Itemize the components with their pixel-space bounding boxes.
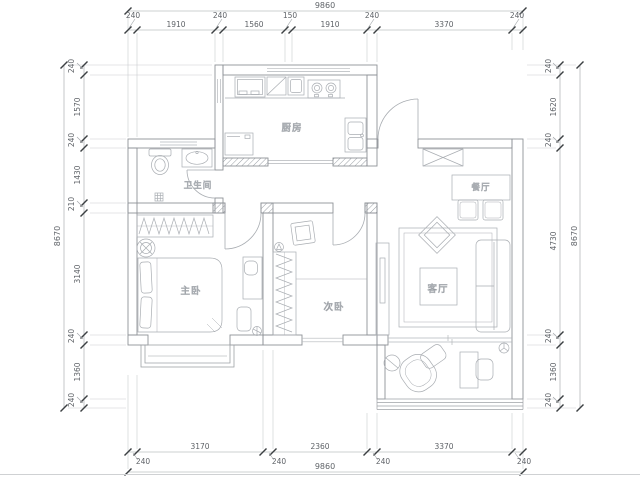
dim-label: 1620	[549, 97, 558, 116]
tv-icon	[376, 243, 389, 335]
fan-icon	[275, 243, 284, 252]
room-label-second-bedroom: 次卧	[323, 301, 344, 313]
washer-icon	[225, 133, 253, 155]
dim-label: 240	[544, 393, 553, 408]
desk-icon	[460, 352, 493, 388]
chair-icon	[483, 200, 503, 220]
dim-label: 150	[283, 11, 298, 20]
side-table-icon	[419, 217, 456, 254]
sink-icon	[345, 118, 366, 152]
dim-label: 240	[136, 457, 151, 466]
dim-chain-top: 9860 240 1910 240 1560 150 1910 240 3370…	[126, 1, 525, 29]
plant-icon	[253, 327, 262, 336]
floor-plan-page: 9860 240 1910 240 1560 150 1910 240 3370…	[0, 0, 640, 477]
dim-label: 240	[544, 59, 553, 74]
dim-label: 240	[376, 457, 391, 466]
dim-label: 8670	[570, 226, 579, 246]
walls	[128, 65, 523, 399]
floor-plan-svg: 9860 240 1910 240 1560 150 1910 240 3370…	[0, 0, 640, 477]
dim-label: 1910	[320, 20, 339, 29]
dim-label: 240	[517, 457, 532, 466]
room-balcony	[384, 343, 509, 398]
dim-label: 240	[126, 11, 141, 20]
dim-label: 1910	[166, 20, 185, 29]
dim-chain-right: 8670 240 1620 240 4730 240 1360 240	[544, 59, 579, 408]
dim-label: 2360	[310, 442, 329, 451]
floor-drain-icon	[499, 343, 509, 353]
lounge-chair-icon	[394, 349, 442, 397]
door-swing-icon	[225, 213, 261, 249]
dim-label: 240	[544, 133, 553, 148]
room-kitchen: 厨房	[225, 77, 366, 155]
extension-lines	[68, 14, 576, 469]
dim-label: 240	[544, 329, 553, 344]
floor-drain-icon	[155, 193, 163, 201]
desk-icon	[243, 257, 262, 299]
dim-label: 240	[67, 393, 76, 408]
dim-label: 9860	[315, 462, 335, 471]
dim-label: 9860	[315, 1, 335, 10]
dim-label: 1430	[73, 165, 82, 184]
door-swing-icon	[333, 213, 365, 245]
dim-label: 3140	[73, 264, 82, 283]
cabinet-icon	[267, 77, 304, 95]
room-master-bedroom: 主卧	[137, 215, 262, 336]
room-label-bathroom: 卫生间	[184, 180, 213, 191]
dim-label: 1570	[73, 97, 82, 116]
basin-icon	[182, 149, 212, 167]
desk-icon	[291, 221, 316, 246]
bench-icon	[237, 307, 251, 331]
bay-window-icon	[141, 345, 234, 367]
doors	[187, 99, 418, 249]
room-label-kitchen: 厨房	[281, 122, 302, 134]
room-living: 客厅	[376, 217, 510, 335]
dim-chain-left: 8670 240 1570 240 1430 210 3140 240 1360…	[53, 59, 82, 408]
room-label-master-bedroom: 主卧	[180, 285, 201, 297]
chair-icon	[458, 200, 478, 220]
room-bathroom: 卫生间	[149, 149, 212, 201]
dim-label: 240	[272, 457, 287, 466]
dim-label: 240	[213, 11, 228, 20]
sofa-icon	[476, 240, 510, 332]
wardrobe-icon	[137, 215, 213, 237]
dim-label: 1560	[244, 20, 263, 29]
dim-label: 240	[365, 11, 380, 20]
shoe-cabinet-icon	[423, 149, 463, 166]
dim-label: 3370	[434, 20, 453, 29]
room-label-dining: 餐厅	[471, 183, 490, 193]
side-table-icon	[384, 355, 400, 371]
dim-label: 1360	[73, 362, 82, 381]
dim-label: 210	[67, 197, 76, 212]
room-dining: 餐厅	[423, 149, 510, 220]
dim-label: 3170	[190, 442, 209, 451]
dim-label: 4730	[549, 231, 558, 250]
dimension-ticks	[61, 8, 584, 476]
balcony-rail	[377, 399, 523, 410]
fan-icon	[137, 239, 155, 257]
wardrobe-icon	[273, 252, 296, 335]
dim-label: 8670	[53, 226, 62, 246]
toilet-icon	[149, 149, 171, 175]
fridge-icon	[235, 77, 265, 97]
room-label-living: 客厅	[427, 283, 448, 295]
stove-icon	[308, 80, 340, 98]
dim-label: 240	[510, 11, 525, 20]
door-swing-icon	[378, 99, 418, 139]
dim-chain-bottom: 9860 240 3170 240 2360 240 3370 240	[136, 442, 532, 471]
dim-label: 240	[67, 329, 76, 344]
dim-label: 3370	[434, 442, 453, 451]
dim-label: 240	[67, 59, 76, 74]
dim-label: 1360	[549, 362, 558, 381]
dim-label: 240	[67, 133, 76, 148]
